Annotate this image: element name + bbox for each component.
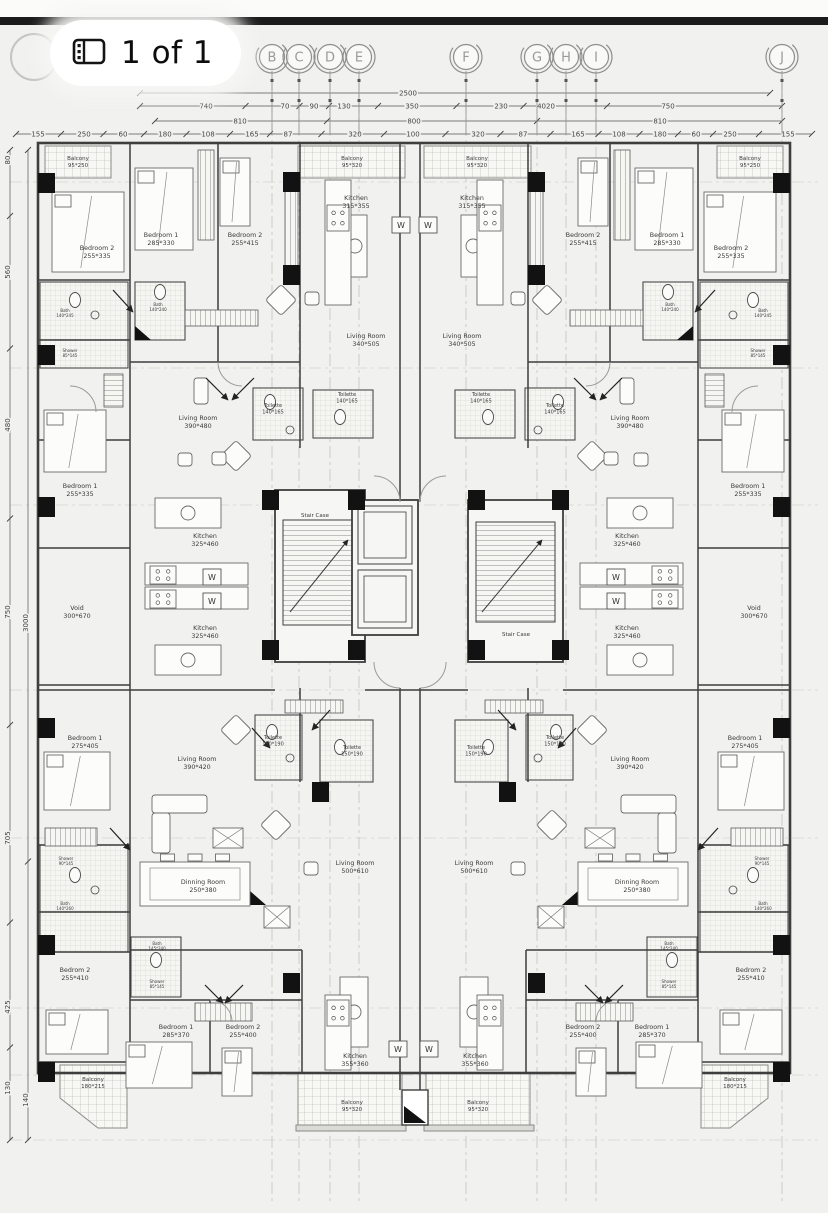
room-label: Bedroom 1255*335 <box>731 483 766 498</box>
room-label: Living Room390*480 <box>179 415 218 430</box>
pillow <box>638 171 654 183</box>
room-label: Kitchen325*460 <box>613 625 640 640</box>
room-label: Bedroom 1255*335 <box>63 483 98 498</box>
room-label: Kitchen325*460 <box>191 625 218 640</box>
column-marker <box>468 640 485 660</box>
dimension-text: 130 <box>4 1081 12 1094</box>
stair-label: Stair Case <box>301 513 330 519</box>
dimension-text: 810 <box>233 118 246 126</box>
dimension-text: 108 <box>612 131 625 139</box>
chair <box>599 854 613 861</box>
column-marker <box>283 172 300 192</box>
washer-label: W <box>612 597 620 606</box>
toilet-fixture <box>748 868 759 883</box>
bubble-letter: J <box>779 51 784 66</box>
dimension-text: 250 <box>723 131 736 139</box>
room-label: Bedroom 2255*415 <box>566 232 601 247</box>
sofa <box>658 813 676 853</box>
bubble-letter: D <box>325 51 335 66</box>
washer-label: W <box>394 1045 402 1054</box>
fixture-label: Shower85*145 <box>662 979 677 989</box>
room-label: Living Room390*480 <box>611 415 650 430</box>
chair <box>216 854 230 861</box>
dimension-text: 108 <box>201 131 214 139</box>
chair <box>654 854 668 861</box>
column-marker <box>468 490 485 510</box>
chair <box>161 854 175 861</box>
washer-label: W <box>612 573 620 582</box>
room-label: Living Room390*420 <box>178 756 217 771</box>
stove <box>150 590 176 608</box>
room-label: Bedroom 2255*335 <box>714 245 749 260</box>
floorplan-viewer-page: Balcony95*250Bedroom 2255*335Bedroom 128… <box>0 0 828 1213</box>
room-label: Balcony95*250 <box>739 156 762 169</box>
leader-dot <box>271 99 274 102</box>
room-label: Bedrom 2255*410 <box>60 967 91 982</box>
room-label: Bedroom 2255*400 <box>566 1024 601 1039</box>
fixture-label: Shower90*145 <box>755 856 770 866</box>
kitchen-island <box>155 498 221 528</box>
toilet-fixture <box>70 293 81 308</box>
leader-dot <box>536 99 539 102</box>
kitchen-island <box>607 498 673 528</box>
dimension-text: 320 <box>471 131 484 139</box>
room-label: Living Room390*420 <box>611 756 650 771</box>
dimension-text: 165 <box>571 131 584 139</box>
column-marker <box>528 265 545 285</box>
room-label: Kitchen325*460 <box>191 533 218 548</box>
dimension-text: 60 <box>692 131 701 139</box>
leader-dot <box>781 99 784 102</box>
kitchen-island <box>155 645 221 675</box>
room-label: Toilette140*165 <box>544 403 566 416</box>
stair-label: Stair Case <box>502 632 531 638</box>
side-table <box>212 452 226 465</box>
column-marker <box>348 640 365 660</box>
column-marker <box>262 640 279 660</box>
room-label: Balcony95*250 <box>67 156 90 169</box>
room-label: Bedroom 1285*330 <box>650 232 685 247</box>
dimension-text: 130 <box>337 103 350 111</box>
dimension-text: 560 <box>4 265 12 278</box>
floor-plan-drawing: Balcony95*250Bedroom 2255*335Bedroom 128… <box>0 0 828 1213</box>
fixture-label: Shower85*145 <box>751 348 766 358</box>
room-label: Bedroom 2255*415 <box>228 232 263 247</box>
pillow <box>49 1013 65 1025</box>
leader-dot <box>329 99 332 102</box>
dimension-text: 155 <box>31 131 44 139</box>
room-label: Bedroom 1285*370 <box>635 1024 670 1039</box>
room-label: Balcony180*215 <box>723 1077 747 1090</box>
dimension-text: 165 <box>245 131 258 139</box>
room-label: Toilette150*190 <box>341 745 363 758</box>
toilet-fixture <box>748 293 759 308</box>
pages-icon <box>72 38 106 69</box>
room-label: Balcony95*320 <box>467 1100 490 1113</box>
room-label: Bedroom 2255*335 <box>80 245 115 260</box>
room-label: Bedroom 1285*370 <box>159 1024 194 1039</box>
room-label: Bedrom 2255*410 <box>736 967 767 982</box>
column-marker <box>38 345 55 365</box>
toilet-fixture <box>483 410 494 425</box>
bubble-letter: F <box>462 51 469 66</box>
pillow <box>725 413 741 425</box>
sofa <box>620 378 634 404</box>
column-marker <box>773 173 790 193</box>
leader-dot <box>465 79 468 82</box>
leader-dot <box>329 79 332 82</box>
leader-dot <box>358 99 361 102</box>
room-label: Toilette150*190 <box>262 735 284 748</box>
room-label: Kitchen315*355 <box>342 195 369 210</box>
leader-dot <box>595 79 598 82</box>
room-label: Living Room500*610 <box>455 860 494 875</box>
room-label: Bedroom 1275*405 <box>68 735 103 750</box>
room-label: Balcony180*215 <box>81 1077 105 1090</box>
room-label: Kitchen355*360 <box>461 1053 488 1068</box>
dimension-text: 480 <box>4 418 12 431</box>
column-marker <box>499 782 516 802</box>
dimension-text: 70 <box>281 103 290 111</box>
fixture-label: Shower85*145 <box>63 348 78 358</box>
room-label: Kitchen315*355 <box>458 195 485 210</box>
stove <box>479 1000 501 1026</box>
room-label: Bedroom 1275*405 <box>728 735 763 750</box>
column-marker <box>773 345 790 365</box>
dimension-text: 705 <box>4 831 12 844</box>
room-label: Bedroom 1285*330 <box>144 232 179 247</box>
bubble-letter: H <box>561 51 571 66</box>
room-label: Living Room500*610 <box>336 860 375 875</box>
bubble-letter: E <box>355 51 363 66</box>
column-marker <box>773 497 790 517</box>
dimension-text: 87 <box>284 131 293 139</box>
room-label: Balcony95*320 <box>341 1100 364 1113</box>
toilet-fixture <box>663 285 674 300</box>
side-table <box>511 862 525 875</box>
pillow <box>138 171 154 183</box>
leader-dot <box>465 99 468 102</box>
fixture-label: Shower90*145 <box>59 856 74 866</box>
toilet-fixture <box>151 953 162 968</box>
bubble-letter: B <box>268 51 277 66</box>
leader-dot <box>781 79 784 82</box>
dimension-text: 100 <box>406 131 419 139</box>
column-marker <box>773 718 790 738</box>
column-marker <box>348 490 365 510</box>
dimension-text: 4020 <box>537 103 555 111</box>
chair <box>626 854 640 861</box>
pillow <box>723 1013 739 1025</box>
room-label: Toilette140*165 <box>336 392 358 405</box>
column-marker <box>773 935 790 955</box>
room-label: Balcony95*320 <box>341 156 364 169</box>
room-label: Toilette140*165 <box>262 403 284 416</box>
pillow <box>639 1045 655 1057</box>
room-label: Kitchen325*460 <box>613 533 640 548</box>
leader-dot <box>565 79 568 82</box>
room-label: Living Room340*505 <box>443 333 482 348</box>
pillow <box>47 413 63 425</box>
column-marker <box>773 1062 790 1082</box>
column-marker <box>312 782 329 802</box>
pillow <box>129 1045 145 1057</box>
column-marker <box>552 640 569 660</box>
dimension-text: 750 <box>661 103 674 111</box>
washer-label: W <box>397 221 405 230</box>
room-label: Bedroom 2255*400 <box>226 1024 261 1039</box>
sofa <box>152 795 207 813</box>
leader-dot <box>298 99 301 102</box>
pillow <box>55 195 71 207</box>
page-indicator: 1 of 1 <box>121 35 213 71</box>
page-count-pill: 1 of 1 <box>50 20 241 86</box>
stove <box>150 566 176 584</box>
column-marker <box>552 490 569 510</box>
bubble-letter: C <box>294 51 303 66</box>
dimension-text: 60 <box>119 131 128 139</box>
stove <box>652 566 678 584</box>
toilet-fixture <box>667 953 678 968</box>
room-label: Kitchen355*360 <box>341 1053 368 1068</box>
room-label: Toilette150*190 <box>465 745 487 758</box>
washer-label: W <box>424 221 432 230</box>
column-marker <box>38 935 55 955</box>
dimension-text: 3000 <box>22 614 30 632</box>
washer-label: W <box>425 1045 433 1054</box>
stove <box>327 1000 349 1026</box>
room-label: Balcony95*320 <box>466 156 489 169</box>
dimension-text: 180 <box>158 131 171 139</box>
leader-dot <box>595 99 598 102</box>
dimension-text: 140 <box>22 1093 30 1106</box>
dimension-text: 740 <box>199 103 212 111</box>
leader-dot <box>298 79 301 82</box>
pillow <box>47 755 63 767</box>
side-table <box>305 292 319 305</box>
sofa <box>194 378 208 404</box>
column-marker <box>283 973 300 993</box>
pillow <box>721 755 737 767</box>
dimension-text: 90 <box>310 103 319 111</box>
dimension-text: 350 <box>405 103 418 111</box>
dimension-text: 425 <box>4 1000 12 1013</box>
column-marker <box>38 173 55 193</box>
dimension-text: 320 <box>348 131 361 139</box>
leader-dot <box>271 79 274 82</box>
column-marker <box>38 1062 55 1082</box>
dimension-text: 230 <box>494 103 507 111</box>
sofa <box>152 813 170 853</box>
stove <box>652 590 678 608</box>
column-marker <box>528 172 545 192</box>
bubble-letter: G <box>532 51 542 66</box>
side-table <box>304 862 318 875</box>
dimension-text: 750 <box>4 605 12 618</box>
column-marker <box>262 490 279 510</box>
bubble-letter: I <box>594 51 598 66</box>
dimension-text: 2500 <box>399 90 417 98</box>
column-marker <box>283 265 300 285</box>
room-label: Toilette150*190 <box>544 735 566 748</box>
side-table <box>178 453 192 466</box>
dimension-text: 80 <box>4 156 12 165</box>
toilet-fixture <box>335 410 346 425</box>
side-table <box>604 452 618 465</box>
pillow <box>707 195 723 207</box>
side-table <box>511 292 525 305</box>
room-label: Toilette140*165 <box>470 392 492 405</box>
sofa <box>621 795 676 813</box>
dimension-text: 155 <box>781 131 794 139</box>
chair <box>188 854 202 861</box>
washer-label: W <box>208 597 216 606</box>
column-marker <box>38 497 55 517</box>
dimension-text: 800 <box>407 118 420 126</box>
dimension-text: 180 <box>653 131 666 139</box>
dimension-text: 810 <box>653 118 666 126</box>
side-table <box>634 453 648 466</box>
room-label: Living Room340*505 <box>347 333 386 348</box>
fixture-label: Shower85*145 <box>150 979 165 989</box>
toilet-fixture <box>155 285 166 300</box>
leader-dot <box>565 99 568 102</box>
column-marker <box>38 718 55 738</box>
leader-dot <box>536 79 539 82</box>
column-marker <box>528 973 545 993</box>
washer-label: W <box>208 573 216 582</box>
leader-dot <box>358 79 361 82</box>
kitchen-island <box>607 645 673 675</box>
toilet-fixture <box>70 868 81 883</box>
dimension-text: 87 <box>519 131 528 139</box>
dimension-text: 250 <box>77 131 90 139</box>
